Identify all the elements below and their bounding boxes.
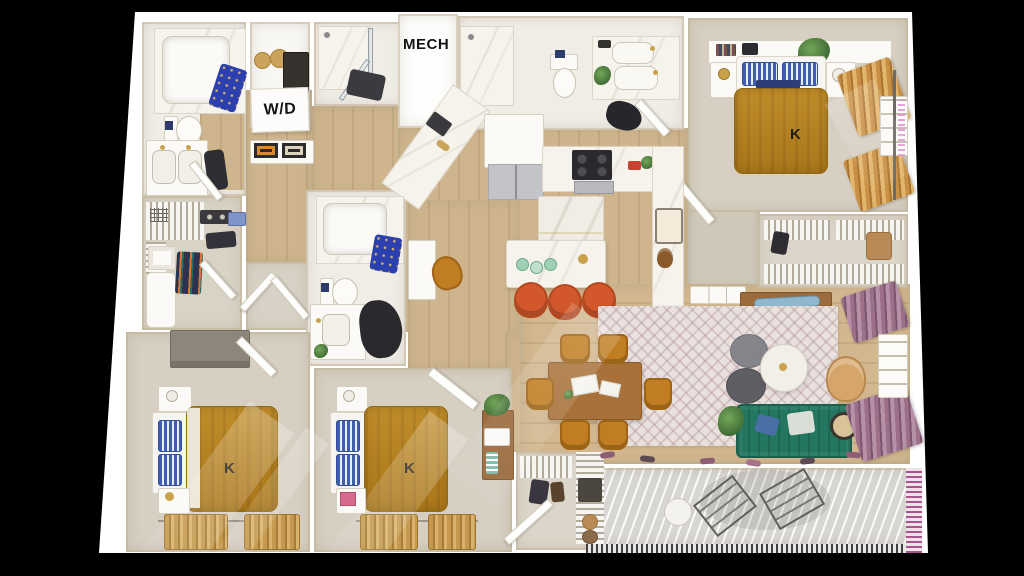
faucet	[186, 145, 191, 150]
lamp	[718, 68, 730, 80]
dining-chair	[644, 378, 672, 410]
hanging-clothes	[360, 514, 418, 550]
king-bed-blanket	[364, 406, 448, 512]
nightstand	[158, 488, 190, 514]
king-bed-label: K	[404, 460, 415, 477]
kitchen-sink	[655, 208, 683, 244]
curtain-rod	[893, 70, 896, 200]
toilet-bowl	[553, 68, 576, 98]
washer-dryer-box: W/D	[250, 87, 310, 133]
hanging-clothes-dark	[205, 231, 236, 250]
sink	[322, 314, 350, 346]
pantry-cabinet	[484, 114, 544, 168]
sofa-throw	[787, 410, 816, 435]
faucet	[316, 318, 321, 323]
tray	[779, 363, 787, 371]
plate	[544, 258, 557, 271]
cutting-board-tomatoes	[628, 161, 641, 170]
floorplan-canvas: W/D MECH K	[0, 0, 1024, 576]
dining-chair	[598, 334, 628, 364]
render-artifact-pink	[898, 100, 905, 156]
window	[878, 334, 908, 398]
basket	[254, 52, 271, 69]
sink	[152, 150, 176, 184]
shower-head	[468, 34, 474, 40]
sink	[612, 42, 654, 64]
art-frame	[254, 143, 278, 158]
books	[716, 44, 736, 56]
faucet	[653, 70, 658, 75]
toilet-accent	[555, 50, 565, 58]
storage-basket	[228, 212, 246, 226]
plate	[516, 258, 529, 271]
pillow	[336, 420, 360, 452]
faucet	[160, 145, 165, 150]
hanging-bag	[550, 481, 565, 502]
hanging-clothes	[175, 251, 203, 294]
gold-dish	[578, 254, 588, 264]
pillow	[158, 420, 182, 452]
sink	[614, 66, 658, 90]
dining-chair	[526, 378, 554, 410]
pillow	[336, 454, 360, 486]
balcony-railing-bottom	[586, 544, 920, 553]
toilet-accent	[321, 283, 329, 292]
bar-stool	[514, 282, 548, 318]
framed-art-pink	[340, 492, 356, 506]
wire-grid	[150, 208, 168, 222]
storage-box	[578, 478, 602, 502]
king-bed-label: K	[790, 126, 801, 143]
closet-chair	[866, 232, 892, 260]
dining-chair	[598, 420, 628, 450]
shower-head	[324, 32, 330, 38]
closet-shelf	[520, 456, 572, 478]
accent-chair	[826, 356, 866, 402]
stove-cooktop	[572, 150, 612, 180]
pillow	[158, 454, 182, 486]
balcony-railing-right	[906, 468, 922, 553]
slippers	[746, 459, 762, 467]
washer-dryer-unit	[283, 52, 309, 92]
built-in-cabinet	[690, 286, 746, 304]
perfume-set	[598, 40, 611, 48]
king-bed-blanket	[734, 88, 828, 174]
hanging-clothes	[428, 514, 476, 550]
oven-front	[574, 181, 614, 194]
dining-chair	[560, 420, 590, 450]
toilet-bowl	[332, 278, 358, 307]
plate-stack	[486, 452, 498, 474]
plate	[530, 261, 543, 274]
hamper	[148, 246, 176, 270]
slippers	[700, 457, 715, 464]
basket	[582, 530, 598, 544]
lamp	[165, 492, 174, 501]
hanging-clothes	[164, 514, 228, 550]
washer-dryer-label: W/D	[263, 100, 296, 119]
desk-organizer	[484, 428, 510, 446]
bar-stool	[548, 284, 582, 320]
dresser	[170, 330, 250, 368]
mech-label: MECH	[403, 36, 449, 53]
lamp	[343, 390, 355, 402]
basket	[582, 514, 598, 530]
closet-rod-shelf	[764, 264, 904, 284]
faucet	[650, 46, 655, 51]
king-bed-label: K	[224, 460, 235, 477]
lamp	[166, 390, 178, 402]
dining-chair	[560, 334, 590, 364]
tablet	[742, 43, 758, 55]
dog	[657, 248, 673, 268]
toilet-accent	[165, 121, 173, 130]
art-frame	[282, 143, 306, 158]
hanging-clothes	[244, 514, 300, 550]
slippers	[846, 451, 861, 458]
refrigerator	[488, 164, 544, 200]
apartment-floorplan: W/D MECH K	[0, 0, 1024, 576]
balcony-table	[664, 498, 692, 526]
bench	[146, 272, 176, 328]
